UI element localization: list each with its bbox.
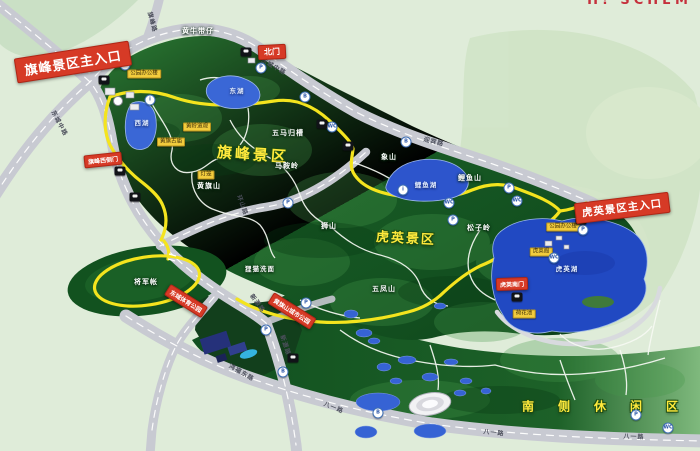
- parking-icon: P: [283, 198, 294, 209]
- info-icon: i: [398, 185, 409, 196]
- bus-stop-icon: B: [278, 367, 289, 378]
- lake-label-east: 东湖: [230, 85, 245, 95]
- entrance-gate-icon: [317, 120, 328, 129]
- entrance-gate-icon: [288, 354, 299, 363]
- parking-icon: P: [578, 225, 589, 236]
- toilet-icon: WC: [512, 196, 523, 207]
- zone-label-huying: 虎英景区: [376, 226, 437, 248]
- facility-label-lantern: 灯笼: [197, 171, 214, 180]
- tram-station-icon: [130, 193, 141, 202]
- park-map-board: H! SCHEM 旗峰景区 虎英景区 南侧休闲区 旗峰景区主入口 北门 虎英景区…: [0, 0, 700, 451]
- entrance-gate-icon: [99, 76, 110, 85]
- peak-label-limaoximian: 狸猫洗面: [245, 263, 275, 273]
- toilet-icon: WC: [549, 253, 560, 264]
- peak-label-huangqishan: 黄旗山: [197, 181, 221, 191]
- parking-icon: P: [448, 215, 459, 226]
- parking-icon: P: [261, 325, 272, 336]
- lake-label-liyu: 鲤鱼湖: [415, 179, 438, 189]
- parking-icon: P: [631, 410, 642, 421]
- board-title-partial: H! SCHEM: [587, 0, 692, 8]
- bus-stop-icon: B: [401, 137, 412, 148]
- lake-label-west: 西湖: [135, 117, 150, 127]
- facility-label-lotus-pond: 荷花池: [513, 310, 536, 319]
- parking-icon: P: [301, 298, 312, 309]
- toilet-icon: WC: [327, 122, 338, 133]
- lake-label-huying: 虎英湖: [556, 263, 579, 273]
- facility-label-huangling-temple: 黄岭道观: [183, 123, 211, 132]
- peak-label-wufengshan: 五凤山: [372, 284, 396, 294]
- entrance-gate-icon: [115, 167, 126, 176]
- entrance-gate-icon: [241, 48, 252, 57]
- parking-icon: P: [504, 183, 515, 194]
- gate-sign-north-gate: 北门: [258, 44, 287, 60]
- peak-label-huangniu: 黄牛带仔: [182, 26, 214, 36]
- road-label-bayi-3: 八一路: [623, 431, 644, 441]
- facility-label-huangqi-temple: 黄旗古庙: [157, 138, 185, 147]
- toilet-icon: WC: [663, 423, 674, 434]
- info-icon: i: [145, 95, 156, 106]
- entrance-gate-icon: [343, 142, 354, 151]
- facility-label-park-office-huying: 公园办公楼: [546, 223, 580, 232]
- entrance-gate-icon: [512, 293, 523, 302]
- peak-label-maan: 马鞍岭: [275, 161, 299, 171]
- peak-label-songziling: 松子岭: [467, 223, 491, 233]
- bus-stop-icon: B: [300, 92, 311, 103]
- bus-stop-icon: B: [373, 408, 384, 419]
- facility-label-park-office-qifeng: 公园办公楼: [127, 70, 161, 79]
- parking-icon: P: [256, 63, 267, 74]
- peak-label-liyushan: 鲤鱼山: [458, 173, 482, 183]
- peak-label-xiang: 象山: [381, 152, 397, 162]
- toilet-icon: WC: [444, 198, 455, 209]
- peak-label-jiangjunzhang: 将军帐: [134, 277, 158, 287]
- peak-label-wuma: 五马归槽: [272, 128, 304, 138]
- zone-label-south-leisure: 南侧休闲区: [522, 398, 700, 415]
- gate-sign-huying-south-gate: 虎英南门: [496, 277, 528, 291]
- peak-label-shishan: 狮山: [321, 221, 337, 231]
